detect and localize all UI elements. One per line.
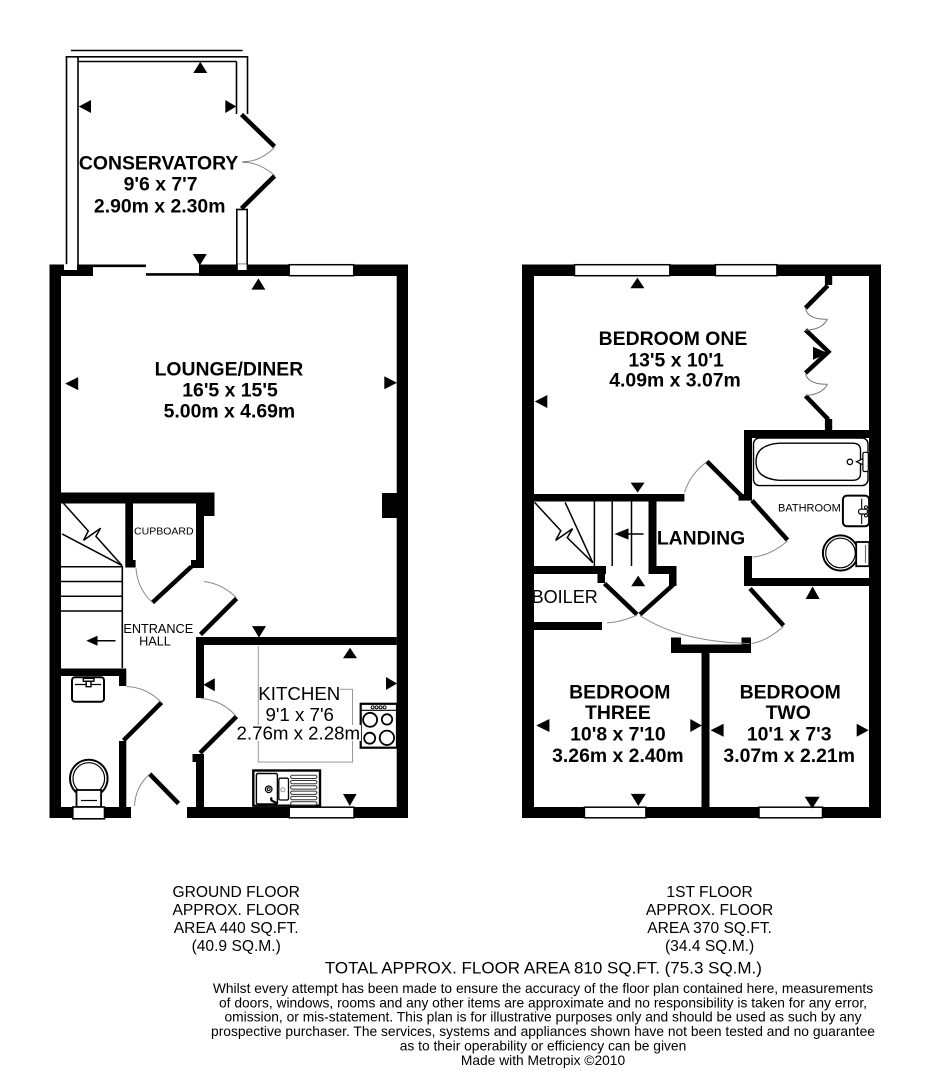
svg-text:prospective purchaser. The ser: prospective purchaser. The services, sys… xyxy=(211,1024,875,1039)
svg-text:GROUND FLOOR: GROUND FLOOR xyxy=(173,884,300,901)
svg-text:AREA 370 SQ.FT.: AREA 370 SQ.FT. xyxy=(647,920,772,937)
svg-text:AREA 440 SQ.FT.: AREA 440 SQ.FT. xyxy=(174,920,299,937)
svg-text:HALL: HALL xyxy=(139,635,171,649)
svg-text:(34.4 SQ.M.): (34.4 SQ.M.) xyxy=(665,938,754,955)
svg-text:BEDROOM: BEDROOM xyxy=(740,682,841,704)
svg-text:as to their operability or eff: as to their operability or efficiency ca… xyxy=(400,1039,687,1054)
svg-text:LOUNGE/DINER: LOUNGE/DINER xyxy=(155,359,304,381)
svg-text:CUPBOARD: CUPBOARD xyxy=(134,526,194,538)
svg-text:Whilst every attempt has been: Whilst every attempt has been made to en… xyxy=(213,981,873,996)
svg-text:of doors, windows, rooms and a: of doors, windows, rooms and any other i… xyxy=(219,995,867,1010)
svg-text:5.00m x 4.69m: 5.00m x 4.69m xyxy=(164,401,296,423)
svg-text:THREE: THREE xyxy=(585,702,651,724)
svg-text:KITCHEN: KITCHEN xyxy=(258,683,340,704)
svg-text:3.07m x 2.21m: 3.07m x 2.21m xyxy=(723,745,855,767)
svg-text:4.09m x 3.07m: 4.09m x 3.07m xyxy=(609,370,741,392)
svg-text:13'5 x 10'1: 13'5 x 10'1 xyxy=(628,350,724,372)
svg-text:16'5 x 15'5: 16'5 x 15'5 xyxy=(182,380,278,402)
svg-text:BEDROOM ONE: BEDROOM ONE xyxy=(599,328,748,350)
svg-text:10'1 x 7'3: 10'1 x 7'3 xyxy=(747,724,832,746)
svg-text:10'8 x 7'10: 10'8 x 7'10 xyxy=(570,724,666,746)
svg-text:Made with Metropix ©2010: Made with Metropix ©2010 xyxy=(461,1053,626,1068)
svg-text:omission, or mis-statement. Th: omission, or mis-statement. This plan is… xyxy=(224,1010,861,1025)
svg-text:TOTAL APPROX. FLOOR AREA 810 S: TOTAL APPROX. FLOOR AREA 810 SQ.FT. (75.… xyxy=(325,959,762,978)
svg-text:APPROX. FLOOR: APPROX. FLOOR xyxy=(173,902,300,919)
svg-text:2.90m x 2.30m: 2.90m x 2.30m xyxy=(94,196,226,218)
svg-text:BEDROOM: BEDROOM xyxy=(569,682,670,704)
svg-text:BOILER: BOILER xyxy=(532,587,598,607)
svg-text:1ST FLOOR: 1ST FLOOR xyxy=(666,884,752,901)
svg-text:APPROX. FLOOR: APPROX. FLOOR xyxy=(646,902,773,919)
svg-text:BATHROOM: BATHROOM xyxy=(778,503,841,515)
svg-text:CONSERVATORY: CONSERVATORY xyxy=(79,153,239,175)
svg-text:TWO: TWO xyxy=(766,702,811,724)
svg-text:2.76m x 2.28m: 2.76m x 2.28m xyxy=(236,723,360,744)
svg-text:9'6 x 7'7: 9'6 x 7'7 xyxy=(124,174,198,196)
svg-text:(40.9 SQ.M.): (40.9 SQ.M.) xyxy=(192,938,281,955)
svg-text:3.26m x 2.40m: 3.26m x 2.40m xyxy=(552,745,684,767)
svg-text:LANDING: LANDING xyxy=(657,527,745,549)
